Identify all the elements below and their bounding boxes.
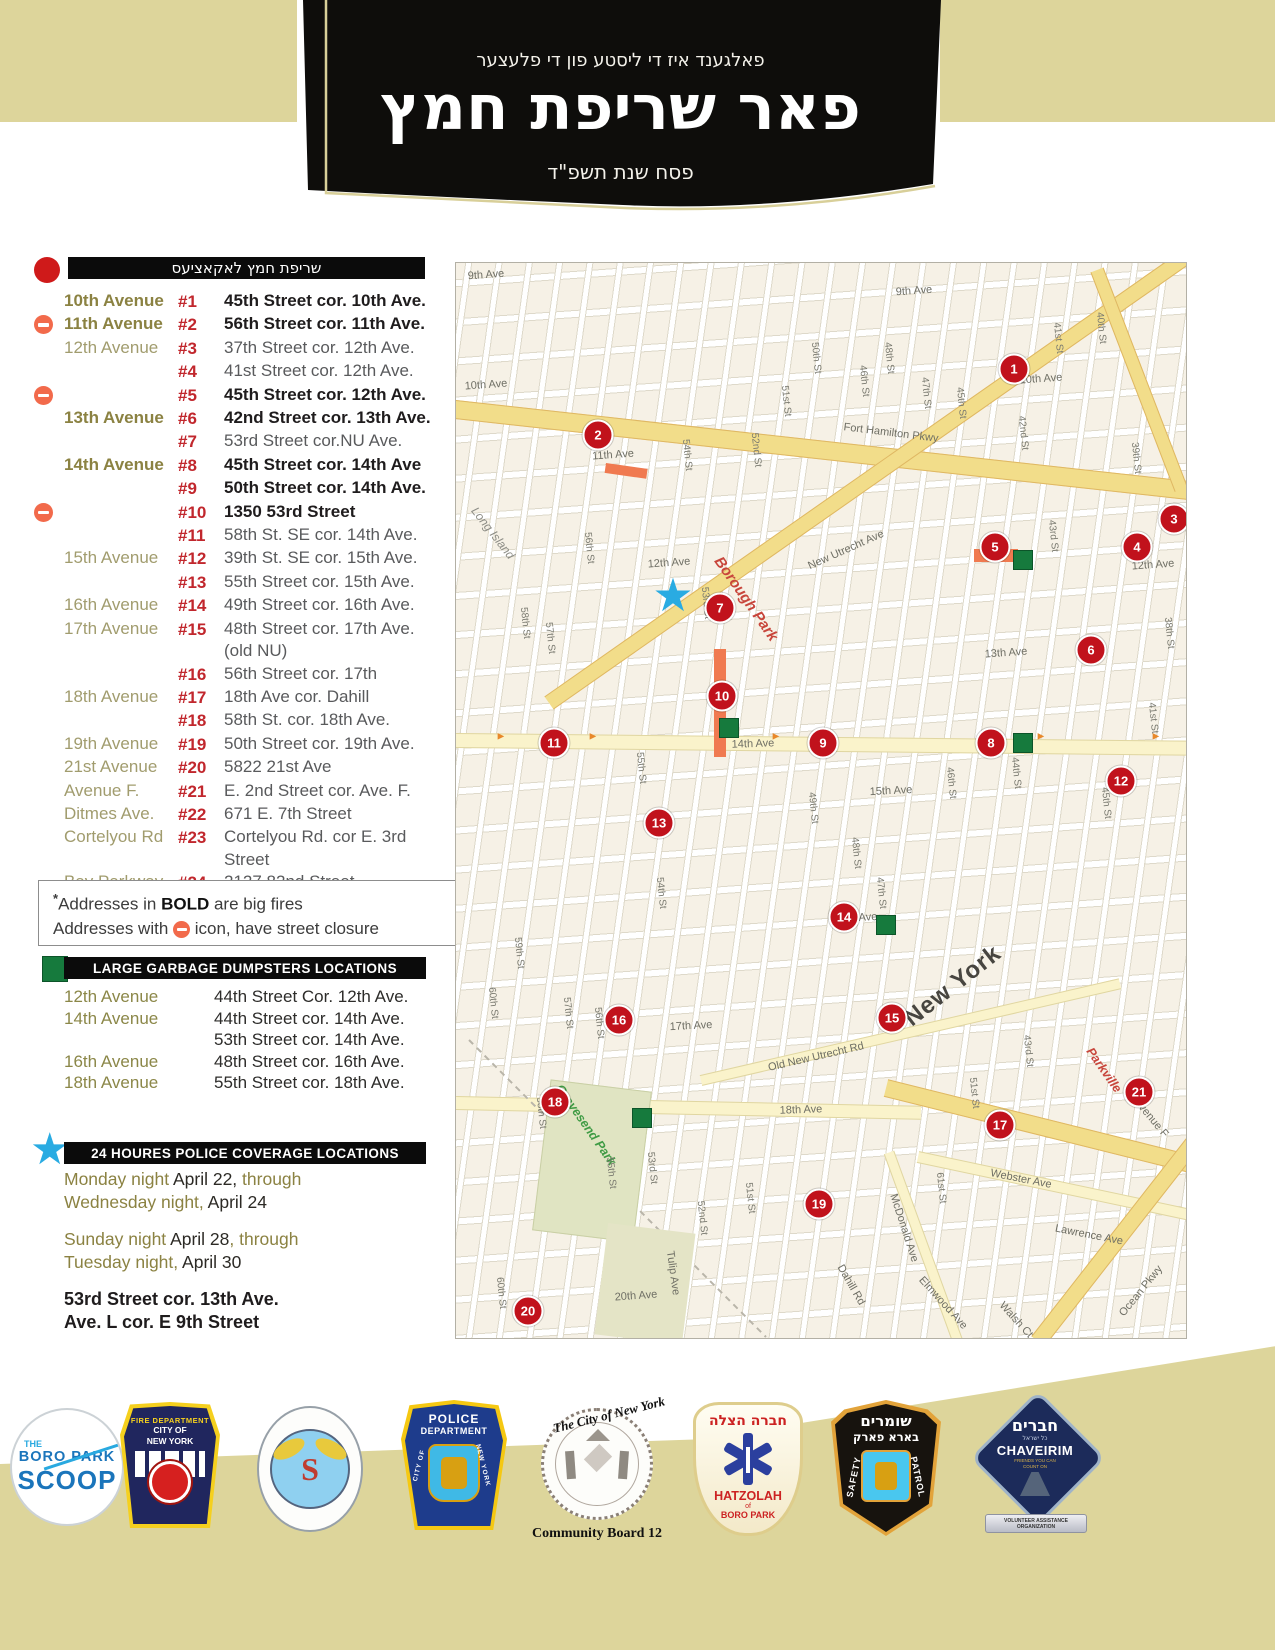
location-address: E. 2nd Street cor. Ave. F.: [224, 780, 442, 802]
burn-list-row: Avenue F.#21E. 2nd Street cor. Ave. F.: [34, 780, 442, 803]
avenue-label: Ditmes Ave.: [64, 803, 178, 825]
seal-shield: [584, 1444, 612, 1472]
one-way-arrow-icon: ►: [1151, 732, 1162, 743]
police-text-segment: April 28: [170, 1229, 229, 1249]
chaveirim-ribbon: VOLUNTEER ASSISTANCE ORGANIZATION: [985, 1514, 1087, 1533]
burn-section-heading: שריפת חמץ לאקאציעס: [68, 257, 425, 279]
location-address: 45th Street cor. 10th Ave.: [224, 290, 442, 312]
one-way-arrow-icon: ►: [1036, 732, 1047, 743]
city-of-new-york-seal: The City of New York Community Board 12: [532, 1398, 662, 1542]
location-address: 18th Ave cor. Dahill: [224, 686, 442, 708]
police-footer-line: Ave. L cor. E 9th Street: [64, 1311, 444, 1334]
location-address: 53rd Street cor.NU Ave.: [224, 430, 442, 452]
avenue-label: 13th Avenue: [64, 407, 178, 429]
map-marker-9: 9: [808, 728, 839, 759]
map-dumpster-square: [719, 718, 739, 738]
closure-cell: [34, 384, 64, 406]
map-dumpster-square: [1013, 733, 1033, 753]
dumpster-row: 12th Avenue44th Street Cor. 12th Ave.: [64, 986, 444, 1008]
location-address: 50th Street cor. 19th Ave.: [224, 733, 442, 755]
burn-list-row: 14th Avenue#845th Street cor. 14th Ave: [34, 454, 442, 477]
map-marker-7: 7: [705, 593, 736, 624]
top-band-right: [940, 0, 1275, 122]
location-number: #17: [178, 686, 224, 709]
star-of-life-icon: [722, 1433, 774, 1485]
avenue-label: 18th Avenue: [64, 1072, 214, 1094]
shomrim-emblem: [861, 1450, 911, 1502]
location-number: #21: [178, 780, 224, 803]
avenue-label: 12th Avenue: [64, 337, 178, 359]
map-police-star: ★: [652, 572, 693, 618]
note-line-1: *Addresses in BOLD are big fires: [53, 887, 451, 917]
burn-list-row: 13th Avenue#642nd Street cor. 13th Ave.: [34, 407, 442, 430]
location-number: #11: [178, 524, 224, 547]
location-number: #20: [178, 756, 224, 779]
police-section-heading: 24 HOURES POLICE COVERAGE LOCATIONS: [64, 1142, 426, 1164]
location-number: #4: [178, 360, 224, 383]
one-way-arrow-icon: ►: [771, 732, 782, 743]
burn-list-row: #1158th St. SE cor. 14th Ave.: [34, 524, 442, 547]
shomrim-logo: שומרים בארא פארק SAFETY PATROL: [831, 1400, 941, 1536]
map-label: 17th Ave: [669, 1019, 712, 1033]
one-way-arrow-icon: ►: [496, 732, 507, 743]
nypd-logo: POLICE DEPARTMENT CITY OF NEW YORK: [401, 1400, 507, 1530]
police-line: Wednesday night, April 24: [64, 1191, 434, 1214]
burn-list-row: 18th Avenue#1718th Ave cor. Dahill: [34, 686, 442, 709]
dumpster-address: 55th Street cor. 18th Ave.: [214, 1072, 444, 1094]
avenue-label: 17th Avenue: [64, 618, 178, 640]
page-title: פאר שריפת חמץ: [293, 74, 948, 142]
header-subtitle-top: פאלגענד איז די ליסטע פון די פלעצער: [293, 50, 948, 71]
burn-list-row: 12th Avenue#337th Street cor. 12th Ave.: [34, 337, 442, 360]
borough-park-map: 9th Ave9th Ave10th Ave10th Ave11th Ave12…: [455, 262, 1187, 1339]
map-dumpster-square: [632, 1108, 652, 1128]
avenue-label: 12th Avenue: [64, 986, 214, 1008]
map-marker-5: 5: [980, 532, 1011, 563]
top-band-left: [0, 0, 297, 122]
map-marker-11: 11: [539, 728, 570, 759]
police-text-segment: through: [237, 1169, 301, 1189]
fdny-emblem: [149, 1461, 191, 1503]
map-dumpster-square: [876, 915, 896, 935]
burn-list-row: 10th Avenue#145th Street cor. 10th Ave.: [34, 290, 442, 313]
map-marker-15: 15: [877, 1003, 908, 1034]
dumpster-address: 44th Street Cor. 12th Ave.: [214, 986, 444, 1008]
location-address: 45th Street cor. 12th Ave.: [224, 384, 442, 406]
tulip-ave-green-area: [595, 1223, 696, 1339]
map-marker-14: 14: [829, 902, 860, 933]
burn-location-list: 10th Avenue#145th Street cor. 10th Ave.1…: [34, 290, 442, 895]
location-number: #8: [178, 454, 224, 477]
closure-cell: [34, 501, 64, 523]
location-address: 39th St. SE cor. 15th Ave.: [224, 547, 442, 569]
location-number: #9: [178, 477, 224, 500]
location-number: #19: [178, 733, 224, 756]
seal-figure-left: [565, 1451, 576, 1480]
community-board-caption: Community Board 12: [532, 1526, 662, 1542]
dumpster-row: 18th Avenue55th Street cor. 18th Ave.: [64, 1072, 444, 1094]
dumpster-address: 44th Street cor. 14th Ave.: [214, 1008, 444, 1030]
location-number: #1: [178, 290, 224, 313]
map-marker-1: 1: [999, 354, 1030, 385]
map-dumpster-square: [1013, 550, 1033, 570]
seal-figure-right: [618, 1451, 629, 1480]
location-number: #18: [178, 709, 224, 732]
one-way-arrow-icon: ►: [588, 732, 599, 743]
map-marker-6: 6: [1076, 635, 1107, 666]
street-closure-icon: [34, 386, 53, 405]
avenue-label: 14th Avenue: [64, 454, 178, 476]
police-text-segment: , through: [229, 1229, 298, 1249]
location-number: #22: [178, 803, 224, 826]
map-marker-4: 4: [1122, 532, 1153, 563]
dumpster-address: 48th Street cor. 16th Ave.: [214, 1051, 444, 1073]
map-label: 9th Ave: [467, 268, 504, 283]
location-address: 50th Street cor. 14th Ave.: [224, 477, 442, 499]
map-marker-19: 19: [804, 1189, 835, 1220]
location-number: #23: [178, 826, 224, 849]
street-closure-icon: [34, 503, 53, 522]
map-marker-18: 18: [540, 1087, 571, 1118]
dumpster-address: 53th Street cor. 14th Ave.: [214, 1029, 444, 1051]
burn-list-row: #1355th Street cor. 15th Ave.: [34, 571, 442, 594]
avenue-label: 21st Avenue: [64, 756, 178, 778]
police-text-segment: April 22,: [173, 1169, 237, 1189]
nypd-emblem: [428, 1444, 480, 1502]
location-number: #15: [178, 618, 224, 641]
location-number: #5: [178, 384, 224, 407]
location-address: 48th Street cor. 17th Ave. (old NU): [224, 618, 442, 663]
location-number: #2: [178, 313, 224, 336]
burn-list-row: #1656th Street cor. 17th: [34, 663, 442, 686]
dumpster-list: 12th Avenue44th Street Cor. 12th Ave.14t…: [64, 986, 444, 1094]
burn-list-row: 19th Avenue#1950th Street cor. 19th Ave.: [34, 733, 442, 756]
map-marker-10: 10: [707, 681, 738, 712]
fdny-logo: FIRE DEPARTMENT CITY OF NEW YORK: [120, 1402, 220, 1528]
location-number: #14: [178, 594, 224, 617]
street-closure-icon: [173, 921, 190, 938]
location-address: 42nd Street cor. 13th Ave.: [224, 407, 442, 429]
header-banner: פאלגענד איז די ליסטע פון די פלעצער פאר ש…: [293, 0, 948, 222]
burn-list-row: Ditmes Ave.#22671 E. 7th Street: [34, 803, 442, 826]
street-closure-icon: [34, 315, 53, 334]
police-footer-line: 53rd Street cor. 13th Ave.: [64, 1288, 444, 1311]
map-marker-13: 13: [644, 808, 675, 839]
flyer-canvas: פאלגענד איז די ליסטע פון די פלעצער פאר ש…: [0, 0, 1275, 1650]
location-number: #12: [178, 547, 224, 570]
police-paragraph: Sunday night April 28, throughTuesday ni…: [64, 1228, 434, 1274]
avenue-label: Avenue F.: [64, 780, 178, 802]
burn-list-row: #1858th St. cor. 18th Ave.: [34, 709, 442, 732]
note-line-2: Addresses with icon, have street closure: [53, 917, 451, 941]
avenue-label: 14th Avenue: [64, 1008, 214, 1030]
avenue-label: 16th Avenue: [64, 594, 178, 616]
burn-list-row: 15th Avenue#1239th St. SE cor. 15th Ave.: [34, 547, 442, 570]
police-text-segment: Monday night: [64, 1169, 173, 1189]
burn-location-icon: [34, 257, 60, 283]
burn-list-row: #441st Street cor. 12th Ave.: [34, 360, 442, 383]
location-address: 41st Street cor. 12th Ave.: [224, 360, 442, 382]
police-line: Monday night April 22, through: [64, 1168, 434, 1191]
map-marker-17: 17: [985, 1110, 1016, 1141]
avenue-label: 11th Avenue: [64, 313, 178, 335]
note-box: *Addresses in BOLD are big fires Address…: [38, 880, 462, 946]
map-marker-16: 16: [604, 1005, 635, 1036]
avenue-label: 16th Avenue: [64, 1051, 214, 1073]
burn-list-row: 16th Avenue#1449th Street cor. 16th Ave.: [34, 594, 442, 617]
dumpster-section-heading: LARGE GARBAGE DUMPSTERS LOCATIONS: [64, 957, 426, 979]
location-address: 49th Street cor. 16th Ave.: [224, 594, 442, 616]
location-number: #6: [178, 407, 224, 430]
location-address: 58th St. SE cor. 14th Ave.: [224, 524, 442, 546]
header-subtitle-bottom: פסח שנת תשפ"ד: [293, 160, 948, 184]
map-marker-8: 8: [976, 728, 1007, 759]
map-label: 9th Ave: [895, 284, 932, 299]
location-address: 45th Street cor. 14th Ave: [224, 454, 442, 476]
map-marker-2: 2: [583, 420, 614, 451]
chaveirim-logo: חברים כל ישראל CHAVEIRIM FRIENDS YOU CAN…: [976, 1402, 1094, 1538]
location-address: 37th Street cor. 12th Ave.: [224, 337, 442, 359]
avenue-label: [64, 1029, 214, 1051]
map-marker-20: 20: [513, 1296, 544, 1327]
burn-list-row: #101350 53rd Street: [34, 501, 442, 524]
map-label: 14th Ave: [731, 737, 774, 750]
location-address: 1350 53rd Street: [224, 501, 442, 523]
police-text-segment: Sunday night: [64, 1229, 170, 1249]
dumpster-row: 53th Street cor. 14th Ave.: [64, 1029, 444, 1051]
location-address: 55th Street cor. 15th Ave.: [224, 571, 442, 593]
map-marker-21: 21: [1124, 1077, 1155, 1108]
burn-list-row: 17th Avenue#1548th Street cor. 17th Ave.…: [34, 618, 442, 663]
map-marker-12: 12: [1106, 766, 1137, 797]
police-footer-addresses: 53rd Street cor. 13th Ave.Ave. L cor. E …: [64, 1288, 444, 1334]
road-graphic: [1020, 1472, 1050, 1496]
location-number: #16: [178, 663, 224, 686]
avenue-label: 19th Avenue: [64, 733, 178, 755]
dumpster-row: 14th Avenue44th Street cor. 14th Ave.: [64, 1008, 444, 1030]
burn-list-row: 11th Avenue#256th Street cor. 11th Ave.: [34, 313, 442, 336]
closure-cell: [34, 313, 64, 335]
map-label: 18th Ave: [779, 1103, 822, 1116]
police-text-segment: Tuesday night,: [64, 1252, 178, 1272]
location-number: #13: [178, 571, 224, 594]
hatzolah-logo: חברה הצלה HATZOLAH of BORO PARK: [693, 1402, 803, 1536]
burn-list-row: 21st Avenue#205822 21st Ave: [34, 756, 442, 779]
map-marker-3: 3: [1159, 504, 1188, 535]
police-text-segment: April 24: [204, 1192, 267, 1212]
burn-list-row: #753rd Street cor.NU Ave.: [34, 430, 442, 453]
avenue-label: Cortelyou Rd: [64, 826, 178, 848]
avenue-label: 10th Avenue: [64, 290, 178, 312]
police-line: Sunday night April 28, through: [64, 1228, 434, 1251]
location-address: 56th Street cor. 11th Ave.: [224, 313, 442, 335]
dumpster-row: 16th Avenue48th Street cor. 16th Ave.: [64, 1051, 444, 1073]
burn-list-row: #545th Street cor. 12th Ave.: [34, 384, 442, 407]
location-address: 56th Street cor. 17th: [224, 663, 442, 685]
police-line: Tuesday night, April 30: [64, 1251, 434, 1274]
seal-eagle: [586, 1429, 610, 1441]
police-text-segment: April 30: [178, 1252, 241, 1272]
map-label: 15th Ave: [869, 784, 912, 798]
avenue-label: 18th Avenue: [64, 686, 178, 708]
location-number: #3: [178, 337, 224, 360]
location-address: 671 E. 7th Street: [224, 803, 442, 825]
police-schedule: Monday night April 22, throughWednesday …: [64, 1168, 434, 1288]
sanitation-seal-logo: S: [257, 1406, 363, 1532]
location-address: Cortelyou Rd. cor E. 3rd Street: [224, 826, 442, 871]
burn-list-row: Cortelyou Rd#23Cortelyou Rd. cor E. 3rd …: [34, 826, 442, 871]
location-number: #7: [178, 430, 224, 453]
police-text-segment: Wednesday night,: [64, 1192, 204, 1212]
boro-park-scoop-logo: THE BORO PARK SCOOP: [10, 1408, 124, 1526]
avenue-label: 15th Avenue: [64, 547, 178, 569]
location-address: 5822 21st Ave: [224, 756, 442, 778]
police-paragraph: Monday night April 22, throughWednesday …: [64, 1168, 434, 1214]
location-address: 58th St. cor. 18th Ave.: [224, 709, 442, 731]
burn-list-row: #950th Street cor. 14th Ave.: [34, 477, 442, 500]
location-number: #10: [178, 501, 224, 524]
